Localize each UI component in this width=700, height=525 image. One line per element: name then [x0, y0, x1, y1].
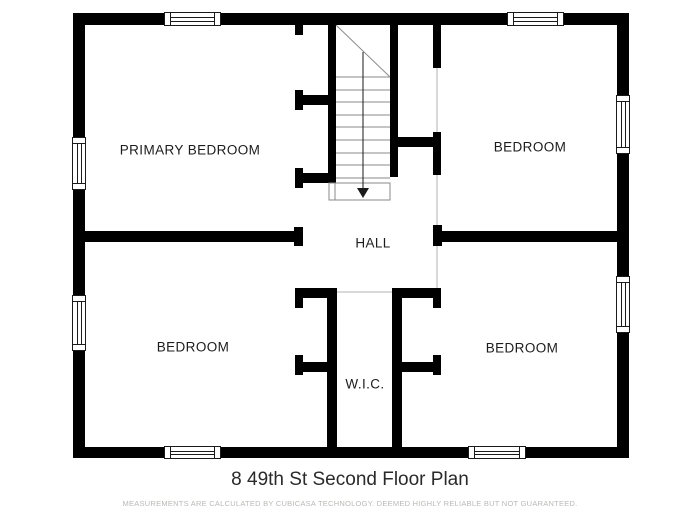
disclaimer-text: MEASUREMENTS ARE CALCULATED BY CUBICASA … [0, 499, 700, 508]
floor-plan-title: 8 49th St Second Floor Plan [0, 469, 700, 491]
window-sash [617, 101, 629, 148]
room-label-primary-bedroom: PRIMARY BEDROOM [120, 143, 261, 158]
wall-wic-left [327, 288, 337, 458]
door-opening [436, 246, 438, 288]
window [72, 295, 86, 351]
room-label-bedroom-bottom-right: BEDROOM [486, 341, 559, 356]
room-label-bedroom-bottom-left: BEDROOM [157, 340, 230, 355]
window-sash [617, 282, 629, 327]
wall-end-cap [433, 225, 442, 246]
window [164, 446, 221, 459]
door-jamb [295, 25, 303, 35]
window [72, 137, 86, 190]
wall-end-cap [294, 227, 303, 246]
window-sash [170, 13, 215, 25]
door-opening [436, 175, 438, 225]
wall-exterior-bottom [73, 447, 629, 458]
window-sash [73, 143, 85, 184]
window [164, 12, 221, 26]
room-label-bedroom-top-right: BEDROOM [494, 140, 567, 155]
wall-wic-right [392, 288, 402, 458]
window [507, 12, 564, 26]
staircase [328, 25, 398, 203]
wall-hall-left [73, 231, 303, 242]
door-opening [436, 68, 438, 132]
window-sash [73, 301, 85, 345]
room-label-wic: W.I.C. [345, 377, 384, 392]
window-sash [513, 13, 558, 25]
wall-hall-right [433, 231, 629, 242]
window [616, 95, 630, 154]
door-opening [337, 291, 392, 293]
window-sash [474, 447, 520, 458]
stairs-down-arrow-icon [328, 25, 398, 203]
wall-segment [433, 25, 441, 68]
room-label-hall: HALL [355, 236, 390, 251]
floor-plan: PRIMARY BEDROOM BEDROOM HALL BEDROOM W.I… [0, 0, 700, 525]
window [616, 276, 630, 333]
window-sash [170, 447, 215, 458]
window [468, 446, 526, 459]
